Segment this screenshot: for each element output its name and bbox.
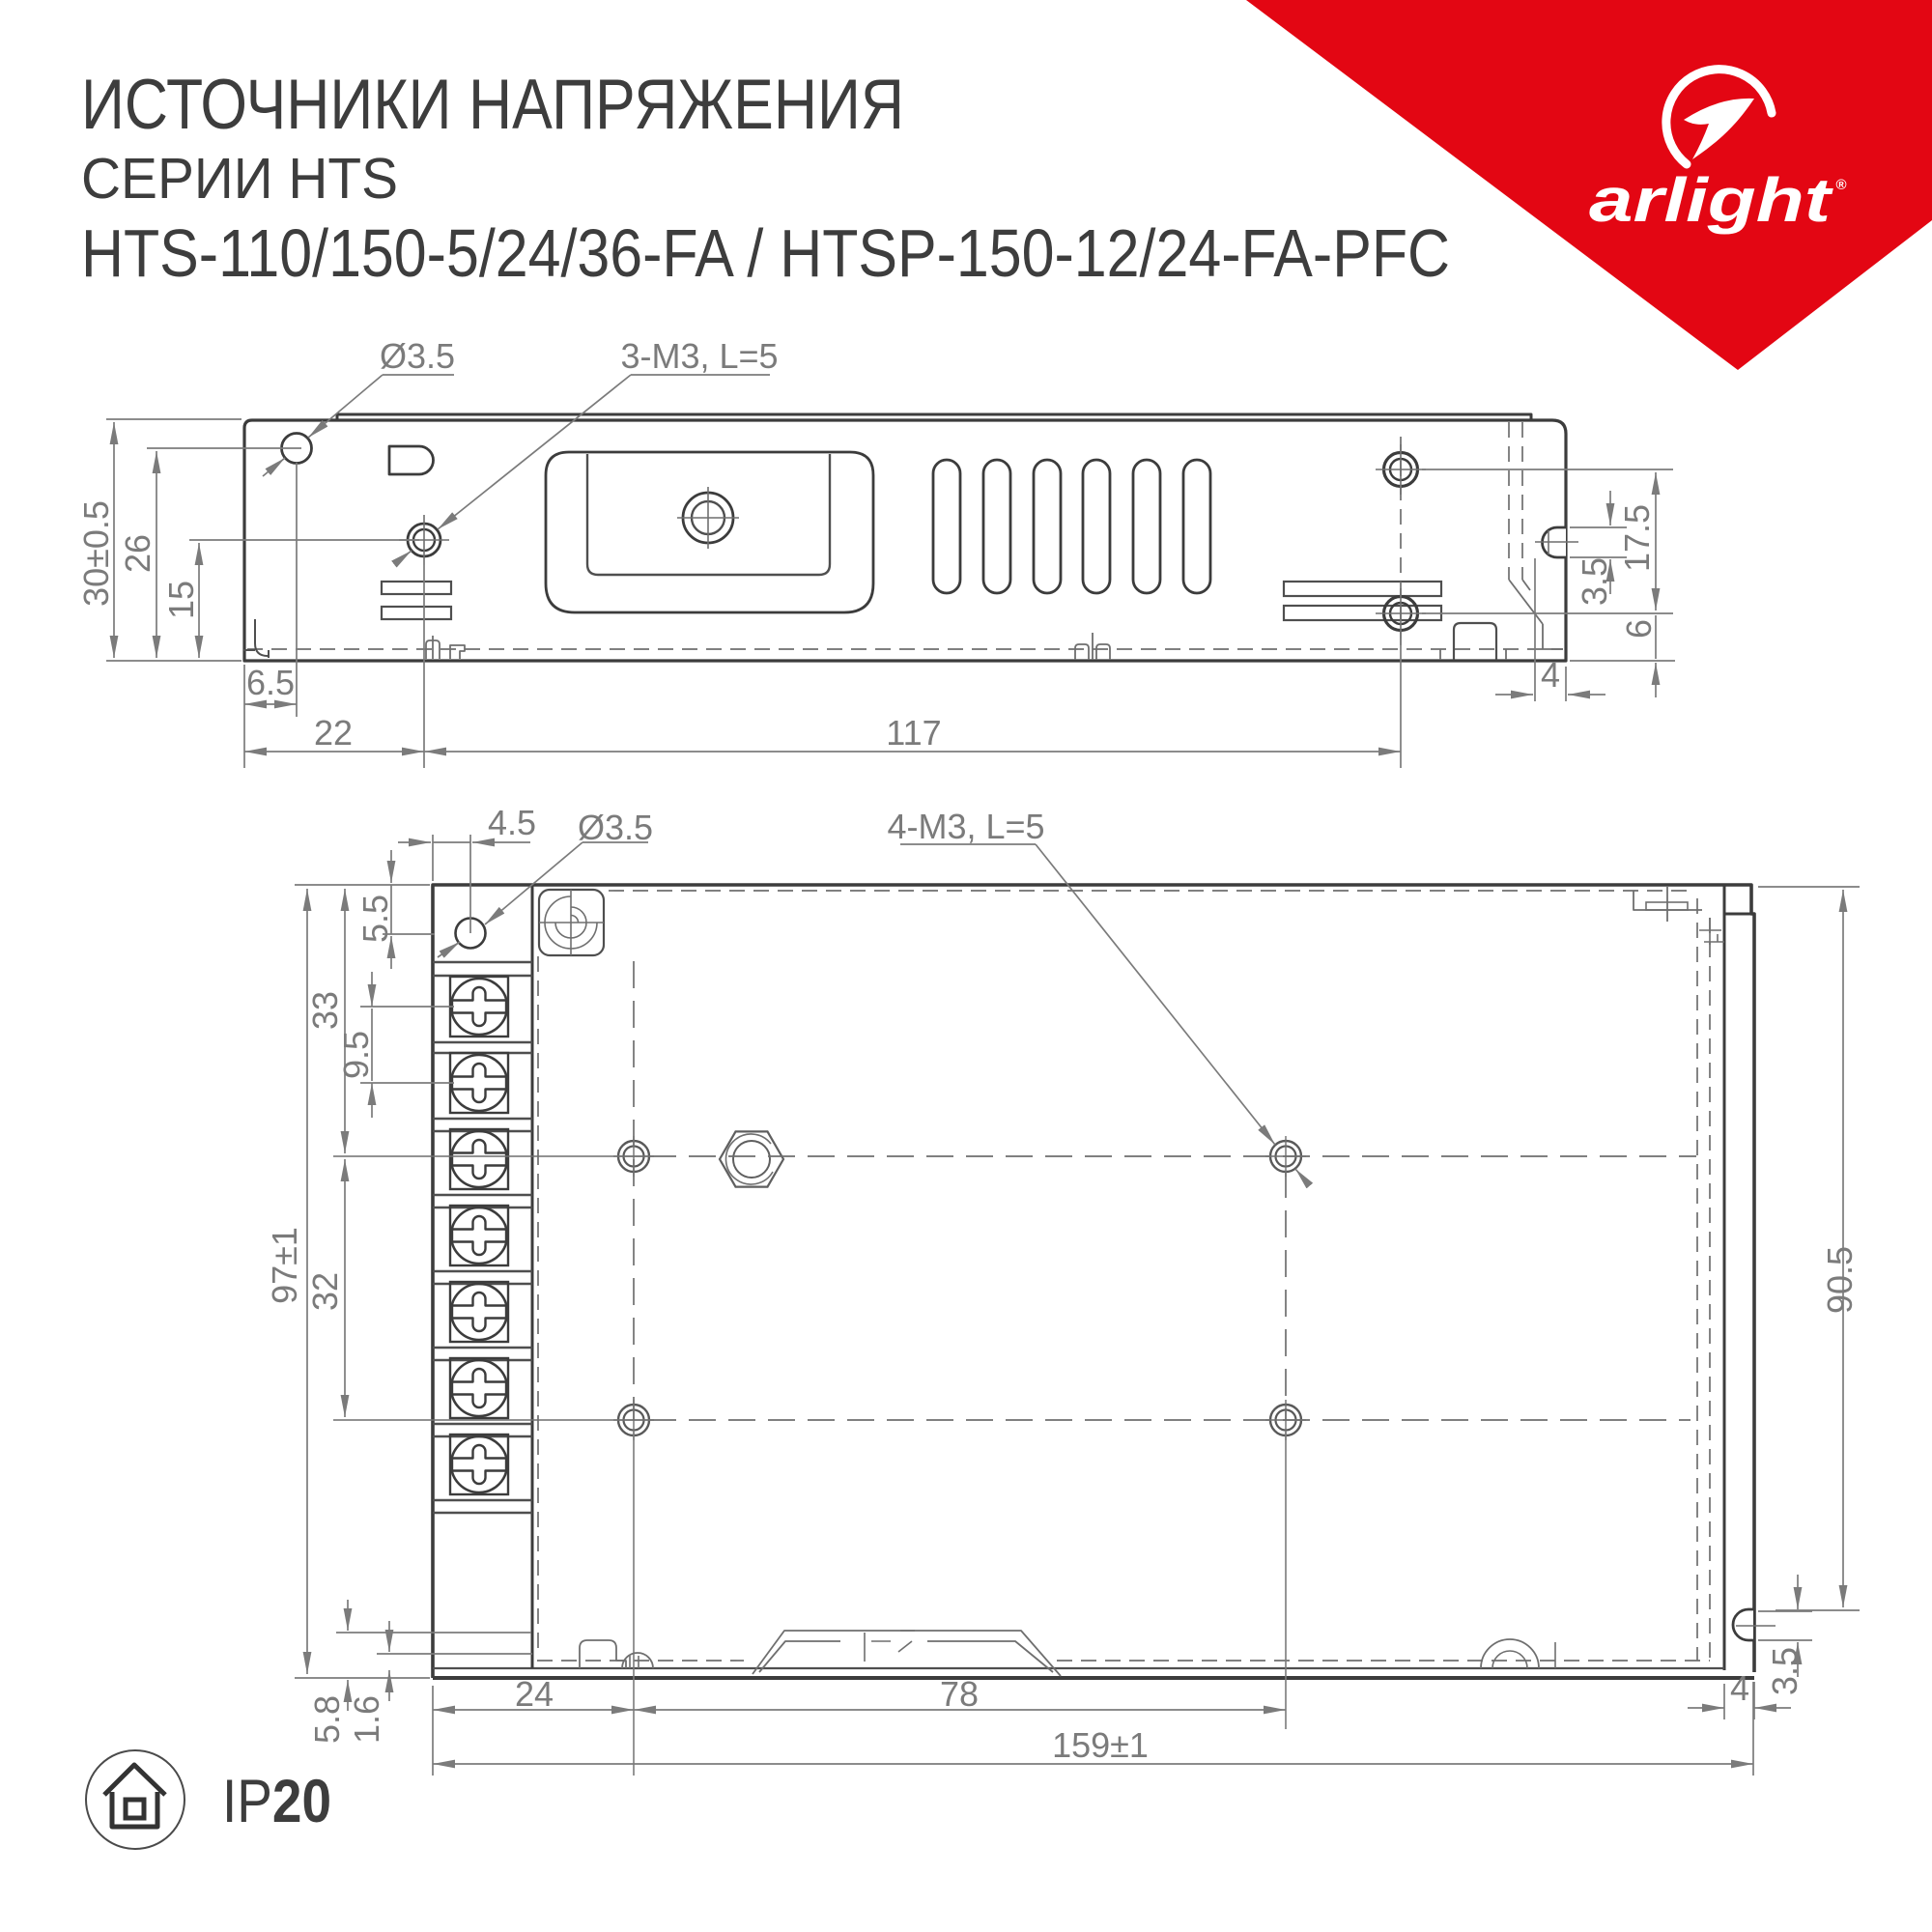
svg-text:Ø3.5: Ø3.5	[380, 336, 455, 376]
svg-text:4: 4	[1730, 1668, 1749, 1708]
svg-text:78: 78	[940, 1674, 979, 1714]
svg-text:24: 24	[515, 1674, 554, 1714]
svg-text:ИСТОЧНИКИ НАПРЯЖЕНИЯ: ИСТОЧНИКИ НАПРЯЖЕНИЯ	[81, 66, 904, 144]
svg-text:90.5: 90.5	[1820, 1246, 1860, 1314]
svg-text:3.5: 3.5	[1765, 1647, 1804, 1695]
svg-text:6: 6	[1619, 619, 1659, 639]
svg-text:26: 26	[118, 534, 157, 573]
svg-text:Ø3.5: Ø3.5	[578, 808, 653, 847]
svg-text:1.6: 1.6	[347, 1695, 386, 1744]
svg-text:22: 22	[314, 713, 353, 753]
svg-text:4-M3, L=5: 4-M3, L=5	[887, 807, 1044, 846]
svg-text:9.5: 9.5	[336, 1031, 376, 1079]
svg-text:15: 15	[161, 581, 201, 619]
svg-text:3.5: 3.5	[1575, 557, 1614, 606]
svg-text:159±1: 159±1	[1052, 1725, 1149, 1765]
svg-text:6.5: 6.5	[246, 663, 295, 702]
svg-text:3-M3, L=5: 3-M3, L=5	[620, 336, 778, 376]
svg-text:4: 4	[1541, 655, 1560, 695]
svg-text:IP20: IP20	[222, 1768, 331, 1835]
svg-text:arlight: arlight	[1589, 165, 1833, 235]
svg-text:5.8: 5.8	[307, 1695, 347, 1744]
svg-text:32: 32	[305, 1272, 345, 1311]
svg-text:HTS-110/150-5/24/36-FA / HTSP-: HTS-110/150-5/24/36-FA / HTSP-150-12/24-…	[81, 215, 1450, 291]
svg-text:97±1: 97±1	[265, 1227, 304, 1304]
svg-text:33: 33	[305, 991, 345, 1030]
svg-text:17.5: 17.5	[1617, 504, 1657, 572]
svg-text:®: ®	[1835, 177, 1846, 193]
svg-text:30±0.5: 30±0.5	[76, 500, 116, 607]
svg-text:4.5: 4.5	[488, 803, 536, 842]
svg-text:СЕРИИ HTS: СЕРИИ HTS	[81, 147, 398, 211]
svg-text:5.5: 5.5	[355, 895, 395, 943]
svg-text:117: 117	[886, 713, 941, 753]
